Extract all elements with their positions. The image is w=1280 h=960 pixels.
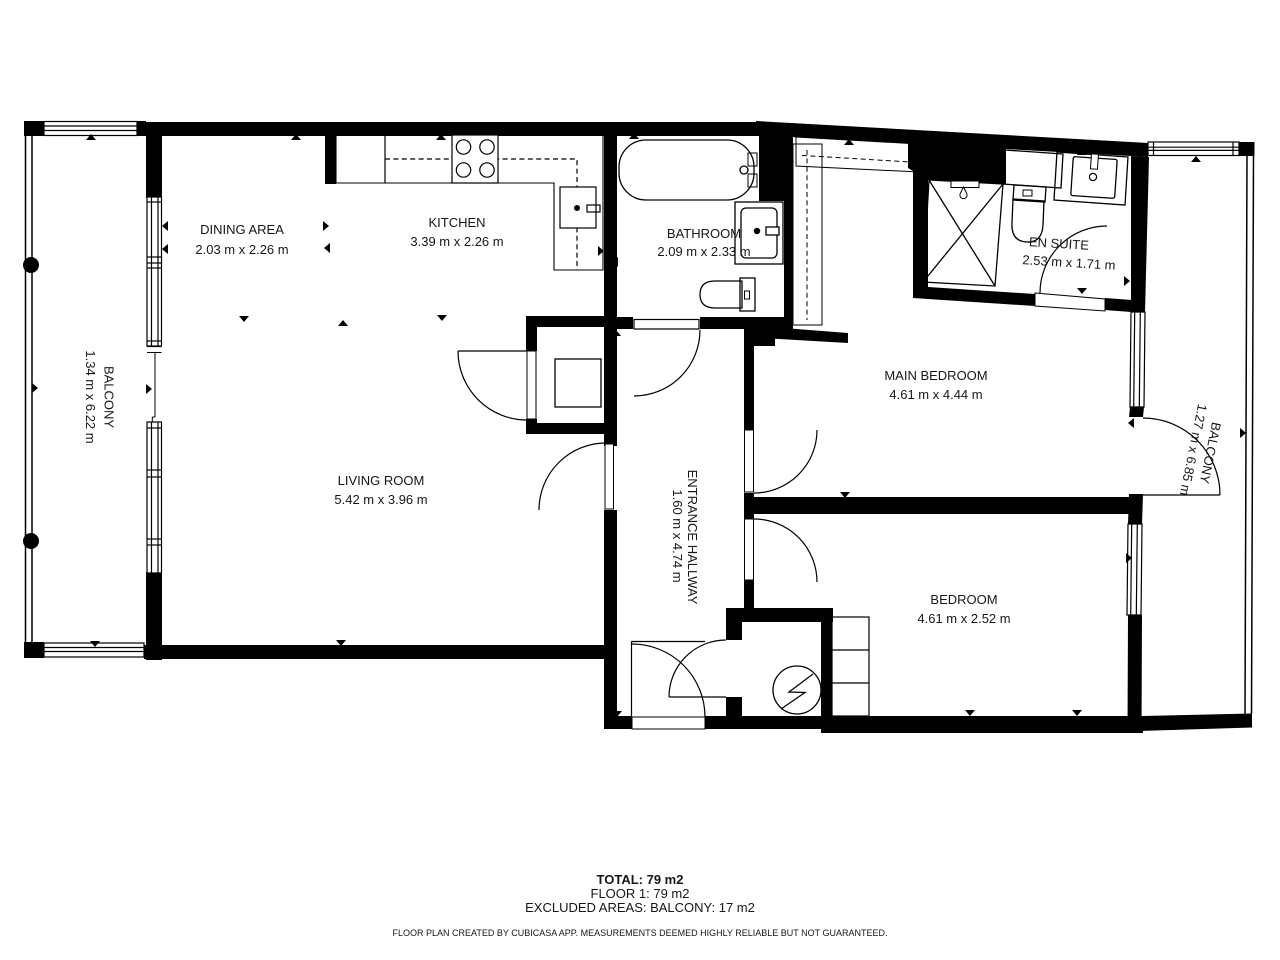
svg-text:DINING AREA: DINING AREA xyxy=(200,222,284,237)
svg-text:4.61 m x 2.52 m: 4.61 m x 2.52 m xyxy=(917,611,1010,626)
svg-text:3.39 m x 2.26 m: 3.39 m x 2.26 m xyxy=(410,234,503,249)
svg-text:BALCONY: BALCONY xyxy=(102,366,117,428)
svg-text:BEDROOM: BEDROOM xyxy=(930,592,997,607)
svg-text:1.60 m x 4.74 m: 1.60 m x 4.74 m xyxy=(670,489,685,582)
svg-text:BATHROOM: BATHROOM xyxy=(667,226,741,241)
svg-text:KITCHEN: KITCHEN xyxy=(428,215,485,230)
svg-text:EXCLUDED AREAS: BALCONY: 17 m2: EXCLUDED AREAS: BALCONY: 17 m2 xyxy=(525,900,755,915)
svg-text:TOTAL: 79 m2: TOTAL: 79 m2 xyxy=(597,872,684,887)
svg-text:5.42 m x 3.96 m: 5.42 m x 3.96 m xyxy=(334,492,427,507)
svg-text:MAIN BEDROOM: MAIN BEDROOM xyxy=(884,368,987,383)
svg-text:2.09 m x 2.33 m: 2.09 m x 2.33 m xyxy=(657,244,750,259)
svg-text:2.03 m x 2.26 m: 2.03 m x 2.26 m xyxy=(195,242,288,257)
svg-text:1.34 m x 6.22 m: 1.34 m x 6.22 m xyxy=(83,350,98,443)
svg-text:FLOOR PLAN CREATED BY CUBICASA: FLOOR PLAN CREATED BY CUBICASA APP. MEAS… xyxy=(393,928,888,938)
svg-text:LIVING ROOM: LIVING ROOM xyxy=(338,473,425,488)
svg-text:FLOOR 1: 79 m2: FLOOR 1: 79 m2 xyxy=(591,886,690,901)
svg-text:ENTRANCE HALLWAY: ENTRANCE HALLWAY xyxy=(685,470,700,605)
svg-text:4.61 m x 4.44 m: 4.61 m x 4.44 m xyxy=(889,387,982,402)
